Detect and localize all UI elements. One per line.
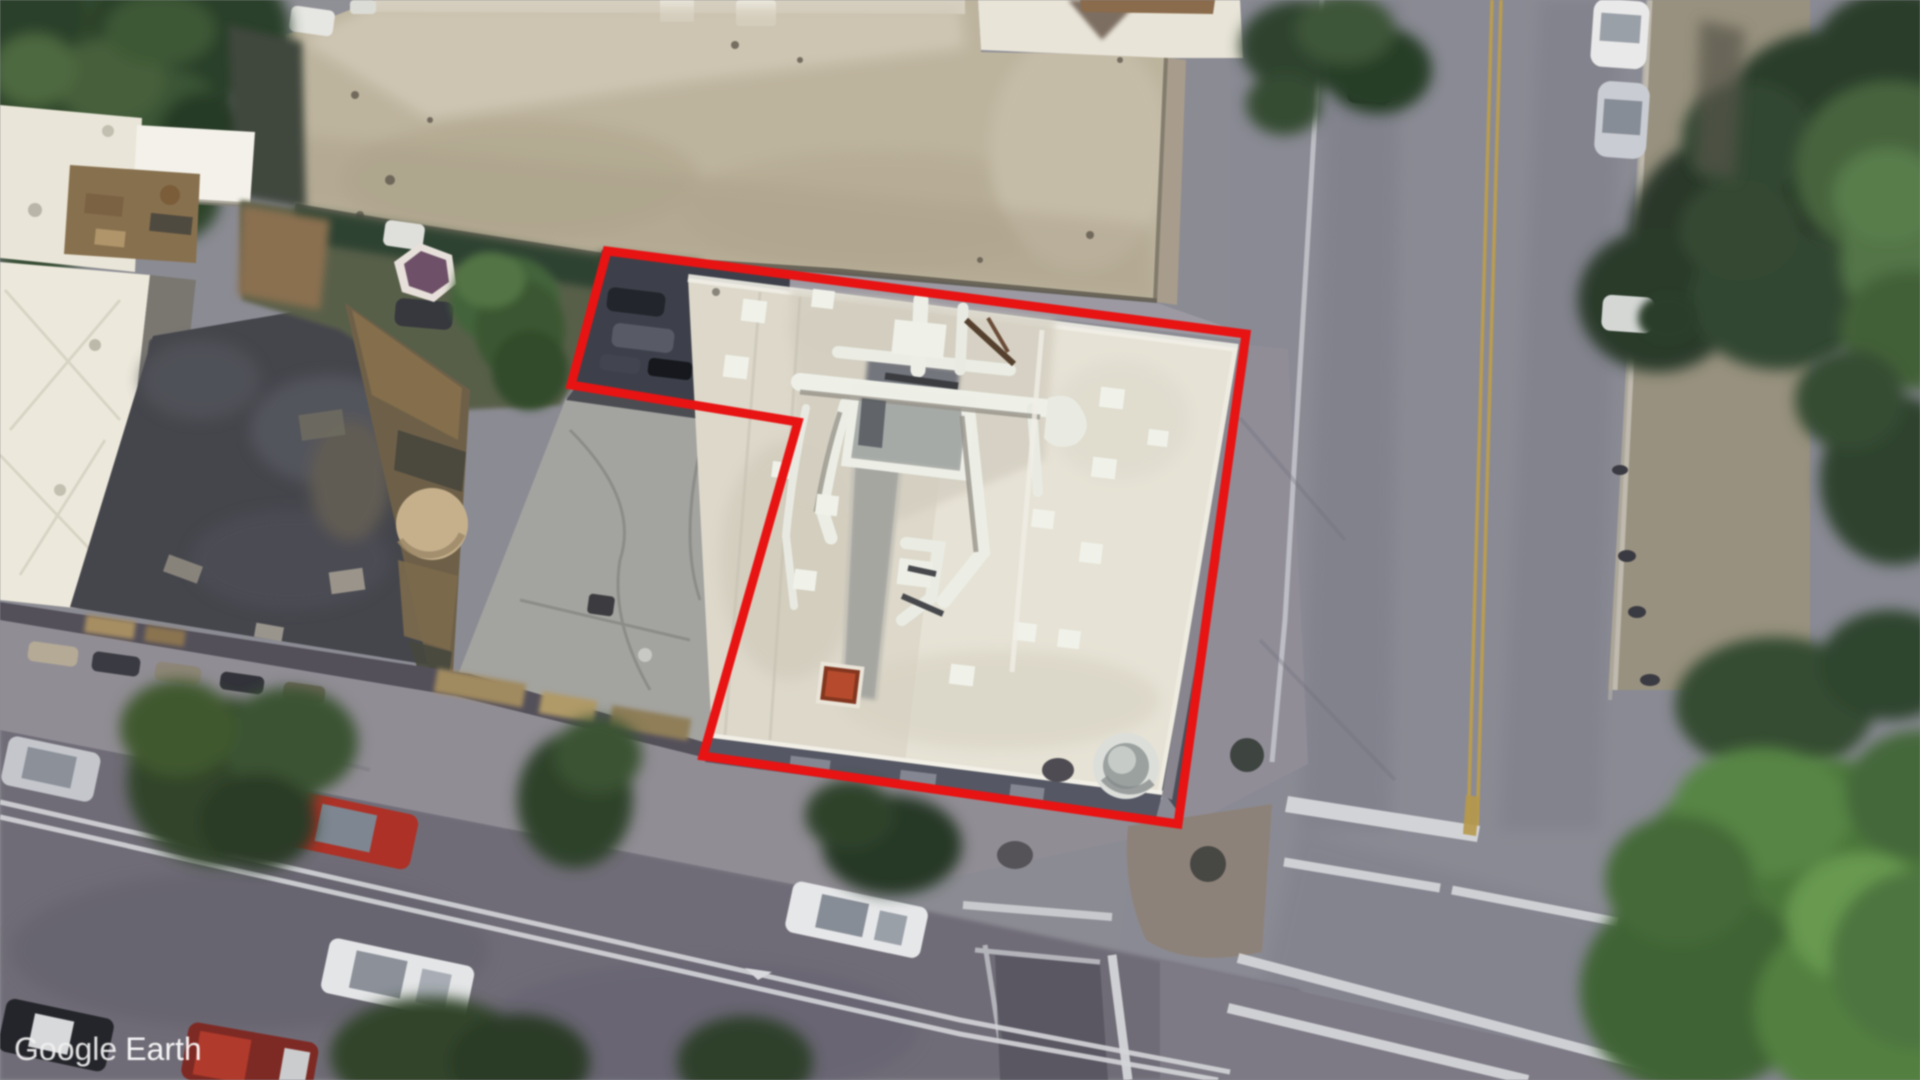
svg-text:GoogleEarth: GoogleEarth — [14, 1031, 202, 1067]
